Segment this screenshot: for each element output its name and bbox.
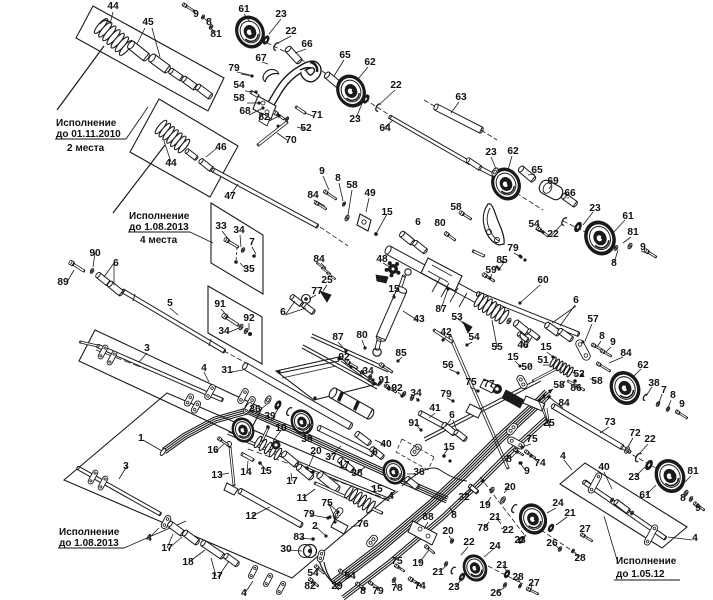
svg-text:30: 30 [280, 544, 292, 555]
svg-text:5: 5 [167, 298, 173, 309]
svg-text:23: 23 [485, 147, 497, 158]
svg-text:37: 37 [325, 452, 337, 463]
svg-text:83: 83 [293, 532, 305, 543]
svg-text:57: 57 [587, 314, 599, 325]
svg-text:64: 64 [379, 123, 391, 134]
svg-text:27: 27 [528, 578, 540, 589]
svg-text:58: 58 [233, 93, 245, 104]
svg-text:79: 79 [372, 586, 384, 597]
svg-text:28: 28 [512, 572, 524, 583]
svg-text:79: 79 [507, 243, 519, 254]
svg-text:Исполнение: Исполнение [616, 556, 677, 567]
svg-text:87: 87 [435, 304, 447, 315]
svg-text:6: 6 [415, 217, 421, 228]
svg-text:4: 4 [241, 588, 247, 599]
svg-text:66: 66 [564, 188, 576, 199]
svg-text:51: 51 [537, 355, 549, 366]
svg-text:6: 6 [372, 447, 378, 458]
svg-text:84: 84 [313, 254, 325, 265]
svg-text:8: 8 [506, 454, 512, 465]
svg-text:92: 92 [243, 313, 255, 324]
svg-text:66: 66 [301, 39, 313, 50]
svg-text:75: 75 [321, 498, 333, 509]
svg-text:54: 54 [233, 80, 245, 91]
svg-text:36: 36 [413, 467, 425, 478]
svg-text:76: 76 [357, 519, 369, 530]
svg-text:29: 29 [331, 581, 343, 592]
svg-text:49: 49 [364, 188, 376, 199]
svg-text:8: 8 [206, 17, 212, 28]
svg-text:82: 82 [304, 581, 316, 592]
svg-text:47: 47 [224, 191, 236, 202]
svg-text:21: 21 [496, 560, 508, 571]
svg-text:15: 15 [388, 284, 400, 295]
svg-text:4: 4 [692, 533, 698, 544]
svg-text:до 1.08.2013: до 1.08.2013 [59, 538, 119, 549]
svg-text:82: 82 [258, 112, 270, 123]
svg-text:18: 18 [182, 557, 194, 568]
svg-text:58: 58 [591, 376, 603, 387]
svg-text:15: 15 [443, 442, 455, 453]
svg-text:до 1.05.12: до 1.05.12 [616, 569, 665, 580]
svg-text:32: 32 [458, 492, 470, 503]
svg-text:22: 22 [463, 537, 475, 548]
svg-text:11: 11 [297, 493, 308, 504]
svg-text:19: 19 [479, 500, 491, 511]
svg-text:12: 12 [245, 511, 257, 522]
svg-text:38: 38 [301, 434, 313, 445]
svg-text:56: 56 [442, 360, 454, 371]
svg-text:40: 40 [380, 439, 392, 450]
svg-text:15: 15 [381, 207, 393, 218]
svg-text:81: 81 [687, 466, 699, 477]
svg-text:54: 54 [528, 219, 540, 230]
svg-text:34: 34 [362, 366, 374, 377]
svg-text:61: 61 [238, 4, 250, 15]
svg-text:4 места: 4 места [140, 235, 178, 246]
svg-text:9: 9 [524, 466, 530, 477]
svg-text:4: 4 [560, 451, 566, 462]
svg-text:62: 62 [637, 360, 649, 371]
svg-text:68: 68 [239, 106, 251, 117]
svg-text:21: 21 [432, 567, 444, 578]
svg-text:79: 79 [303, 509, 315, 520]
svg-text:75: 75 [391, 556, 403, 567]
svg-text:19: 19 [412, 558, 424, 569]
svg-text:86: 86 [570, 383, 582, 394]
svg-text:31: 31 [221, 365, 233, 376]
svg-text:55: 55 [491, 342, 503, 353]
svg-text:74: 74 [534, 458, 546, 469]
svg-text:34: 34 [233, 225, 245, 236]
svg-text:2 места: 2 места [67, 143, 105, 154]
svg-text:58: 58 [450, 202, 462, 213]
svg-text:41: 41 [429, 403, 441, 414]
svg-text:58: 58 [553, 380, 565, 391]
svg-text:до 1.08.2013: до 1.08.2013 [129, 222, 189, 233]
svg-text:9: 9 [610, 337, 616, 348]
svg-text:80: 80 [356, 330, 368, 341]
svg-text:34: 34 [410, 388, 422, 399]
svg-text:15: 15 [260, 466, 272, 477]
svg-text:2: 2 [312, 521, 318, 532]
svg-text:78: 78 [391, 583, 403, 594]
svg-text:92: 92 [391, 383, 403, 394]
svg-text:8: 8 [670, 390, 676, 401]
svg-text:84: 84 [558, 398, 570, 409]
svg-text:48: 48 [376, 254, 388, 265]
svg-text:59: 59 [485, 265, 497, 276]
svg-text:17: 17 [161, 543, 173, 554]
svg-text:85: 85 [496, 255, 508, 266]
svg-text:70: 70 [285, 135, 297, 146]
svg-text:25: 25 [321, 275, 333, 286]
svg-text:20: 20 [504, 482, 516, 493]
svg-text:81: 81 [210, 29, 222, 40]
svg-text:81: 81 [627, 227, 639, 238]
svg-text:24: 24 [489, 541, 501, 552]
svg-text:60: 60 [537, 275, 549, 286]
svg-text:80: 80 [434, 218, 446, 229]
svg-text:26: 26 [490, 588, 502, 599]
svg-text:65: 65 [339, 50, 351, 61]
svg-text:15: 15 [507, 352, 519, 363]
svg-text:35: 35 [243, 264, 255, 275]
svg-text:8: 8 [599, 331, 605, 342]
svg-text:23: 23 [589, 203, 601, 214]
svg-text:9: 9 [319, 166, 325, 177]
svg-text:8: 8 [335, 173, 341, 184]
svg-text:73: 73 [604, 417, 616, 428]
svg-text:Исполнение: Исполнение [129, 211, 190, 222]
svg-text:44: 44 [107, 1, 119, 12]
svg-text:6: 6 [449, 410, 455, 421]
svg-text:34: 34 [218, 326, 230, 337]
svg-text:13: 13 [211, 470, 223, 481]
svg-text:22: 22 [390, 80, 402, 91]
svg-text:74: 74 [414, 581, 426, 592]
svg-text:14: 14 [240, 467, 252, 478]
svg-text:8: 8 [360, 586, 366, 597]
svg-text:54: 54 [468, 332, 480, 343]
svg-text:72: 72 [629, 428, 641, 439]
svg-text:69: 69 [547, 176, 559, 187]
svg-text:15: 15 [371, 484, 383, 495]
svg-text:46: 46 [215, 142, 227, 153]
svg-text:1: 1 [138, 433, 144, 444]
svg-text:6: 6 [573, 295, 579, 306]
svg-text:75: 75 [465, 377, 477, 388]
svg-text:Исполнение: Исполнение [56, 118, 117, 129]
svg-text:71: 71 [311, 110, 323, 121]
svg-text:33: 33 [215, 221, 227, 232]
svg-text:44: 44 [165, 158, 177, 169]
svg-text:7: 7 [249, 237, 255, 248]
svg-text:75: 75 [526, 434, 538, 445]
svg-text:22: 22 [502, 525, 514, 536]
svg-text:27: 27 [579, 524, 591, 535]
svg-text:84: 84 [307, 190, 319, 201]
svg-text:88: 88 [422, 512, 434, 523]
svg-text:87: 87 [332, 332, 344, 343]
svg-text:22: 22 [644, 434, 656, 445]
svg-text:45: 45 [142, 17, 154, 28]
svg-text:62: 62 [364, 57, 376, 68]
svg-text:63: 63 [455, 92, 467, 103]
svg-text:17: 17 [338, 460, 350, 471]
svg-text:91: 91 [214, 299, 226, 310]
svg-text:9: 9 [193, 9, 199, 20]
svg-text:4: 4 [146, 533, 152, 544]
svg-text:62: 62 [507, 146, 519, 157]
svg-text:77: 77 [311, 286, 323, 297]
svg-text:3: 3 [144, 343, 150, 354]
svg-text:9: 9 [679, 399, 685, 410]
svg-text:до 01.11.2010: до 01.11.2010 [56, 129, 121, 140]
svg-text:17: 17 [286, 476, 298, 487]
svg-text:58: 58 [346, 180, 358, 191]
svg-text:9: 9 [695, 503, 701, 514]
svg-text:10: 10 [275, 423, 287, 434]
svg-text:89: 89 [57, 277, 69, 288]
svg-text:22: 22 [285, 26, 297, 37]
svg-text:91: 91 [378, 375, 390, 386]
svg-text:38: 38 [648, 378, 660, 389]
svg-text:50: 50 [521, 362, 533, 373]
svg-text:43: 43 [413, 314, 425, 325]
svg-text:Исполнение: Исполнение [59, 527, 120, 538]
svg-text:61: 61 [622, 211, 634, 222]
svg-text:40: 40 [598, 462, 610, 473]
svg-text:8: 8 [611, 258, 617, 269]
svg-text:36: 36 [249, 404, 261, 415]
svg-text:42: 42 [440, 327, 452, 338]
svg-text:39: 39 [264, 411, 276, 422]
svg-text:67: 67 [255, 53, 267, 64]
svg-text:92: 92 [338, 352, 350, 363]
svg-text:26: 26 [546, 538, 558, 549]
svg-text:15: 15 [540, 342, 552, 353]
svg-text:24: 24 [552, 498, 564, 509]
svg-text:20: 20 [310, 446, 322, 457]
svg-text:6: 6 [280, 307, 286, 318]
svg-text:23: 23 [349, 114, 361, 125]
svg-text:54: 54 [344, 571, 356, 582]
svg-text:8: 8 [680, 493, 686, 504]
svg-text:22: 22 [547, 229, 559, 240]
svg-text:20: 20 [442, 526, 454, 537]
svg-text:23: 23 [275, 9, 287, 20]
svg-text:79: 79 [440, 389, 452, 400]
